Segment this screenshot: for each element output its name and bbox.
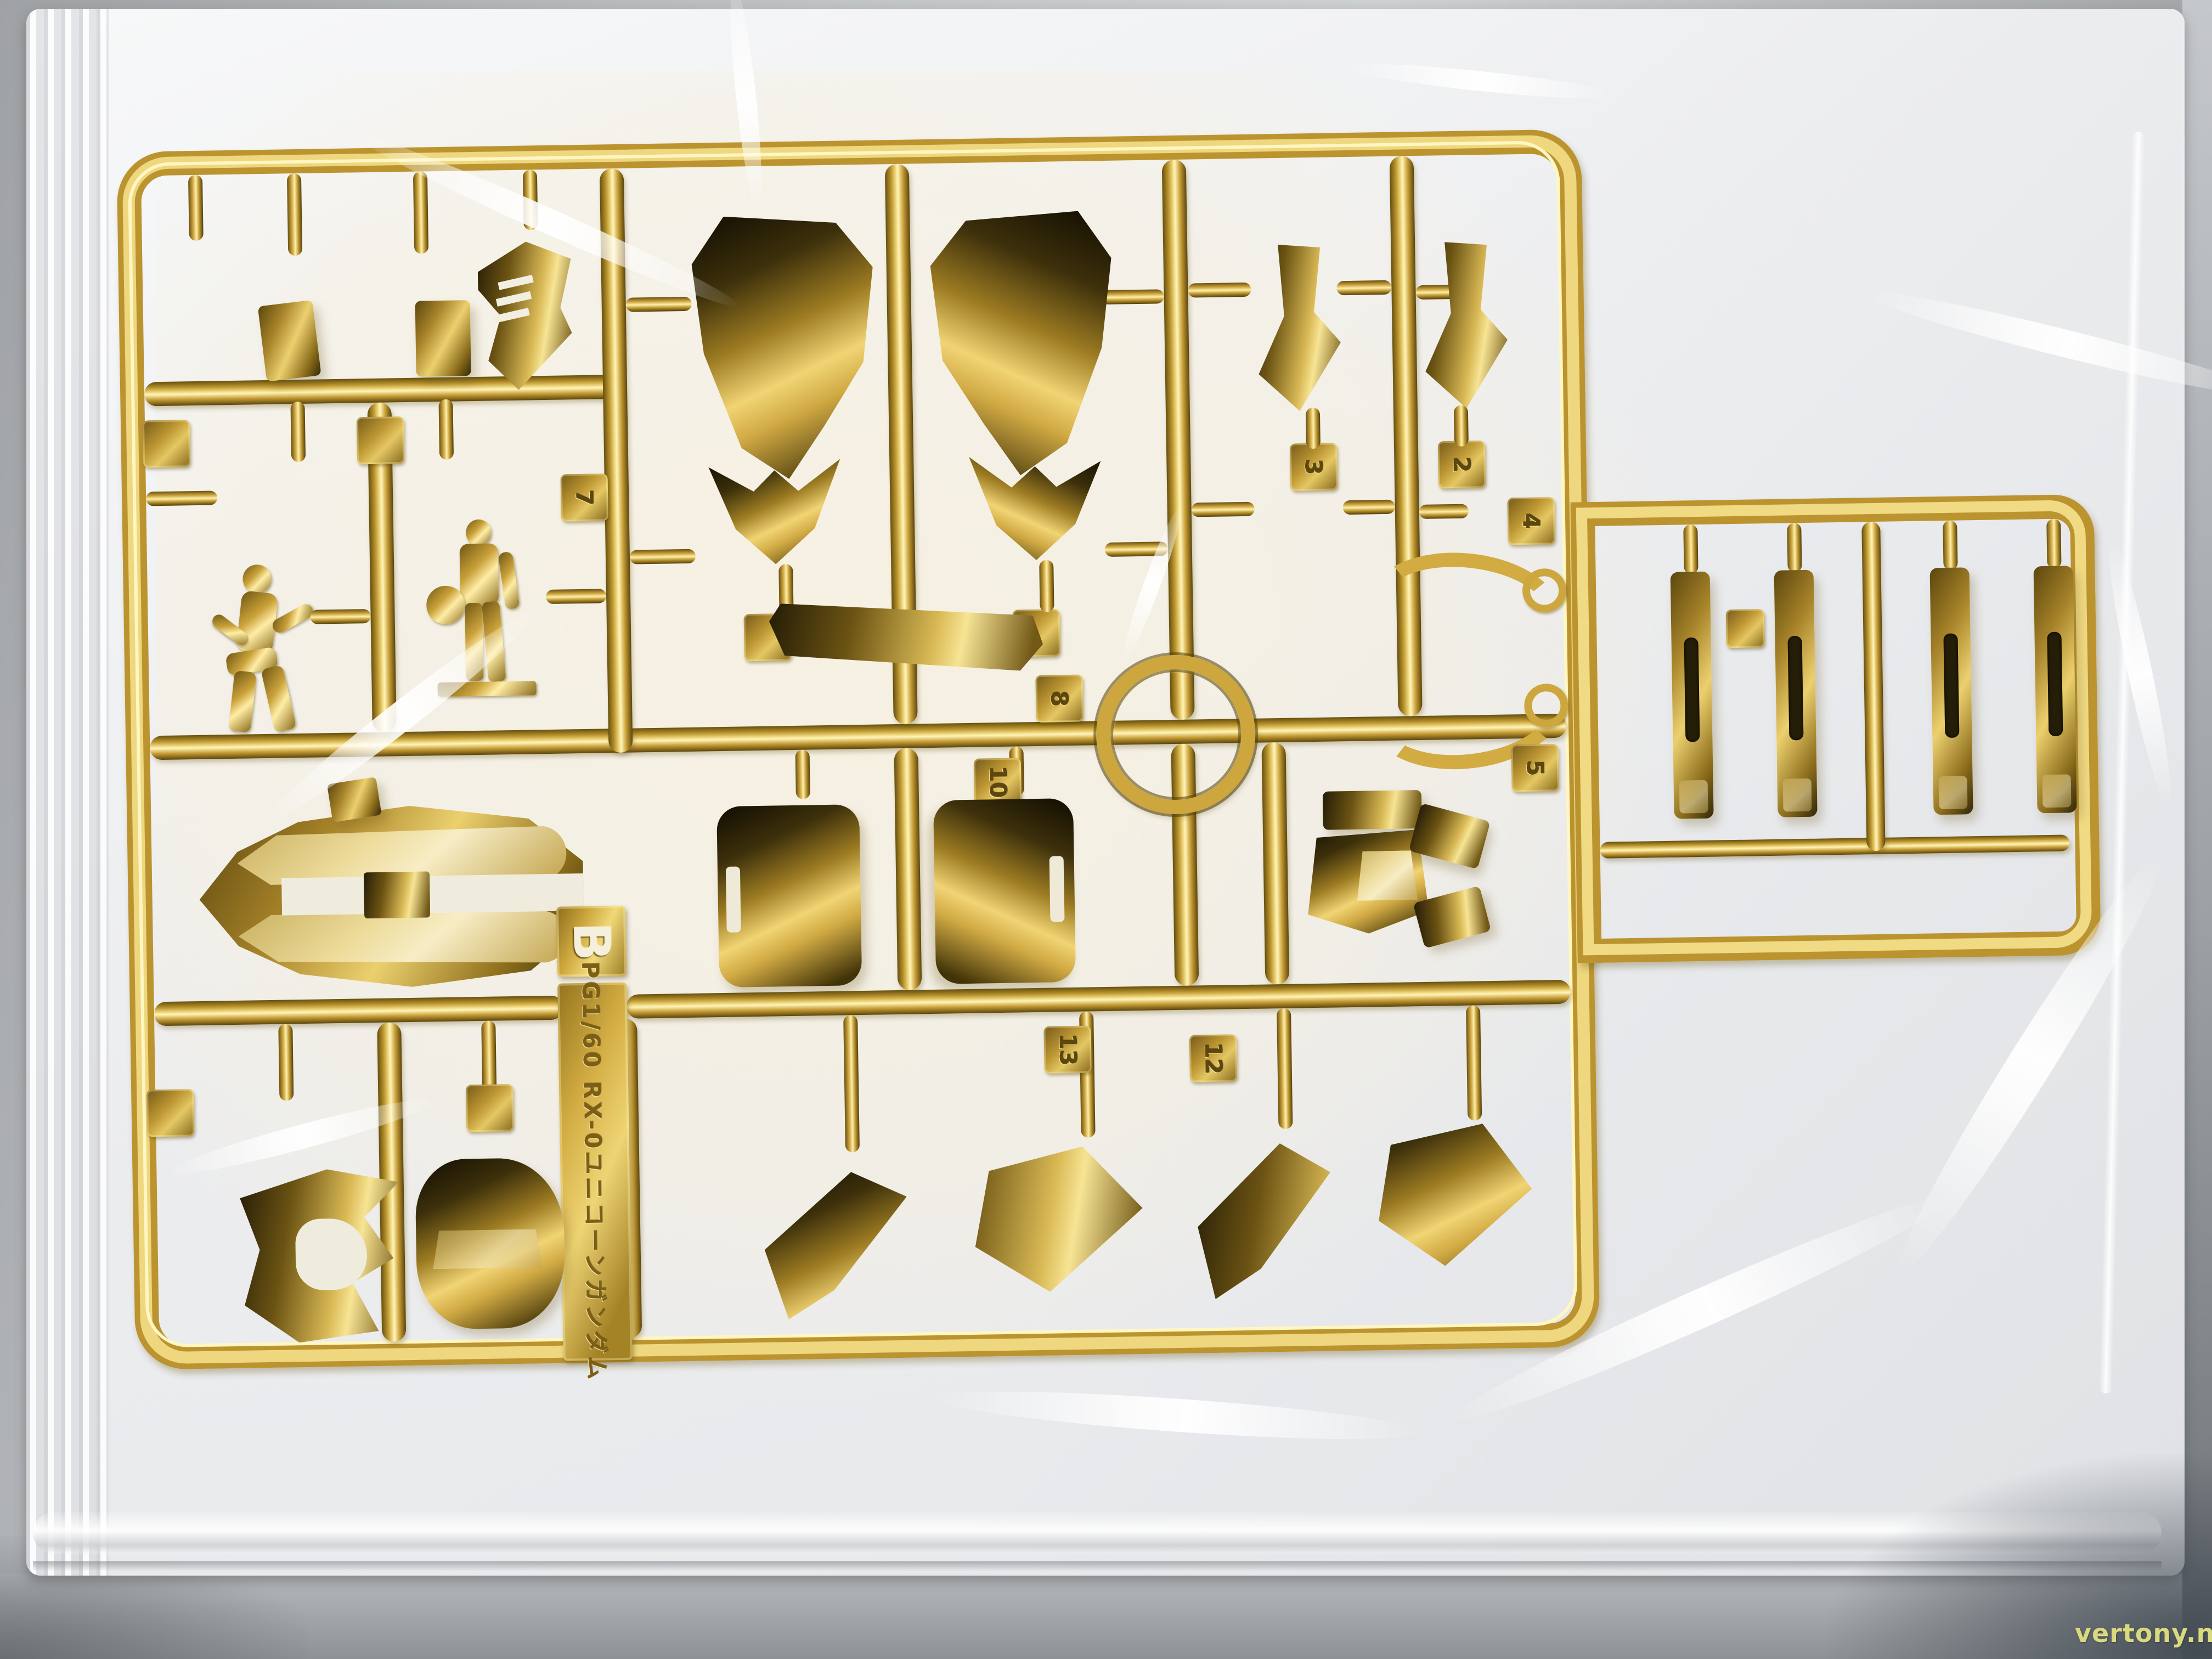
sprue-gate-stub bbox=[546, 589, 606, 604]
part-number-tag bbox=[146, 1089, 194, 1137]
sprue-gate-stub bbox=[413, 171, 428, 253]
part-number-tag: 2 bbox=[1438, 441, 1486, 488]
sprue-gate-stub bbox=[626, 297, 692, 312]
part-number-tag bbox=[466, 1084, 513, 1132]
angular-armor-right bbox=[1196, 1123, 1533, 1310]
shell-notch bbox=[1049, 856, 1065, 922]
part-number-tag: 5 bbox=[1511, 744, 1559, 792]
sprue-gate-stub bbox=[1101, 289, 1164, 304]
sprue-rail bbox=[894, 748, 922, 990]
sprue-gate-stub bbox=[146, 490, 217, 506]
shell-notch bbox=[726, 867, 741, 933]
part-number-tag: 8 bbox=[1035, 675, 1083, 723]
sprue-gate-stub bbox=[1336, 280, 1391, 296]
sprue-gate-stub bbox=[1943, 521, 1957, 570]
sprue-gate-stub bbox=[310, 609, 370, 624]
sprue-gate-stub bbox=[523, 170, 538, 230]
sprue-gate-stub bbox=[278, 1024, 294, 1101]
part-number-tag: 13 bbox=[1043, 1025, 1091, 1073]
sprue-gate-stub bbox=[1192, 502, 1255, 517]
cylinder-part bbox=[1671, 572, 1714, 819]
pilot-figure-standing bbox=[419, 518, 553, 707]
angular-armor-left bbox=[763, 1145, 1144, 1333]
sprue-gate-stub bbox=[630, 549, 696, 565]
sprue-gate-stub bbox=[1419, 504, 1469, 519]
foot-claw-part bbox=[239, 1168, 401, 1344]
sprue-gate-stub bbox=[1454, 405, 1469, 447]
part-number-tag: 7 bbox=[561, 473, 608, 521]
runner-b-sprue: 3 2 7 bbox=[105, 109, 2177, 1419]
pilot-figure-seated bbox=[211, 561, 318, 743]
sprue-gate-stub bbox=[2046, 519, 2061, 568]
cylinder-part bbox=[1774, 570, 1818, 817]
sprue-gate-stub bbox=[1105, 541, 1168, 557]
sprue-rail bbox=[1261, 742, 1289, 985]
sprue-gate-stub bbox=[1306, 408, 1321, 449]
sprue-gate-stub bbox=[188, 175, 204, 241]
photo-scene: 3 2 7 bbox=[0, 0, 2212, 1659]
part-number-tag bbox=[143, 420, 190, 467]
collar-block-part bbox=[1290, 789, 1493, 965]
sprue-gate-stub bbox=[1466, 1005, 1482, 1120]
kit-name-plate: PG1/60 RX-0ユニコーンガンダム bbox=[557, 983, 633, 1361]
small-armor-part bbox=[258, 300, 321, 382]
sprue-gate-stub bbox=[1342, 500, 1395, 515]
watermark: vertony.net bbox=[2075, 1618, 2212, 1648]
sprue-gate-stub bbox=[1039, 560, 1054, 612]
sprue-gate-stub bbox=[1188, 283, 1251, 298]
part-number-tag bbox=[357, 416, 404, 464]
sprue-gate-stub bbox=[1787, 523, 1802, 572]
sprue-extension-highlight bbox=[1576, 500, 2092, 955]
table-edge-right bbox=[2182, 0, 2212, 1659]
part-number-tag bbox=[1726, 609, 1765, 648]
sprue-gate-stub bbox=[438, 399, 454, 460]
part-number-tag: 12 bbox=[1189, 1034, 1237, 1082]
sprue-gate-stub bbox=[843, 1015, 860, 1152]
cylinder-part bbox=[2034, 566, 2077, 813]
sprue-gate-stub bbox=[795, 749, 810, 799]
small-armor-part bbox=[415, 300, 471, 377]
part-number-tag: 3 bbox=[1290, 443, 1338, 490]
sprue-gate-stub bbox=[1277, 1008, 1293, 1129]
sprue-gate-stub bbox=[287, 173, 302, 256]
foot-dome-part bbox=[415, 1158, 566, 1330]
cylinder-part bbox=[1930, 567, 1973, 815]
pod-armor-part bbox=[198, 803, 585, 990]
part-number-tag: 4 bbox=[1507, 497, 1555, 545]
sprue-gate-stub bbox=[1683, 524, 1698, 574]
sprue-gate-stub bbox=[290, 402, 306, 462]
